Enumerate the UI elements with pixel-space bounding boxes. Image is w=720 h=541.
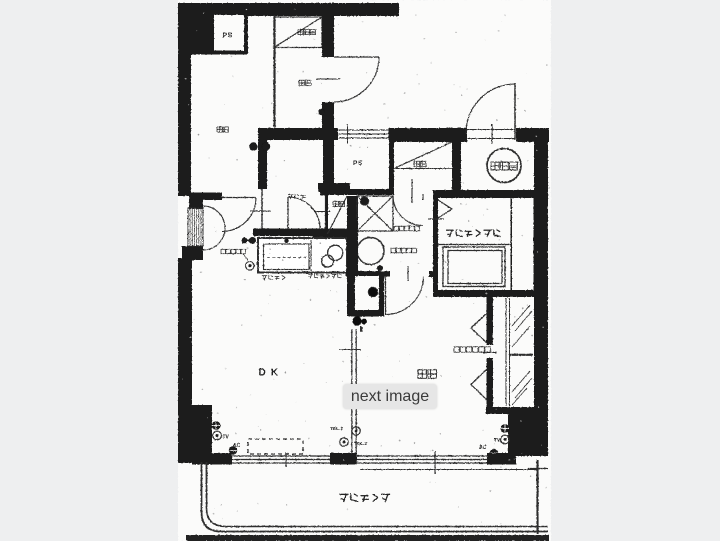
svg-text:TV: TV xyxy=(223,435,230,441)
svg-text:TEL.2: TEL.2 xyxy=(354,441,367,447)
svg-text:TEL.1: TEL.1 xyxy=(330,426,343,432)
svg-text:PS: PS xyxy=(223,33,233,40)
svg-text:D K: D K xyxy=(259,368,280,379)
svg-text:TV: TV xyxy=(494,438,501,444)
svg-text:AC: AC xyxy=(479,445,487,451)
svg-text:PS: PS xyxy=(353,160,363,167)
